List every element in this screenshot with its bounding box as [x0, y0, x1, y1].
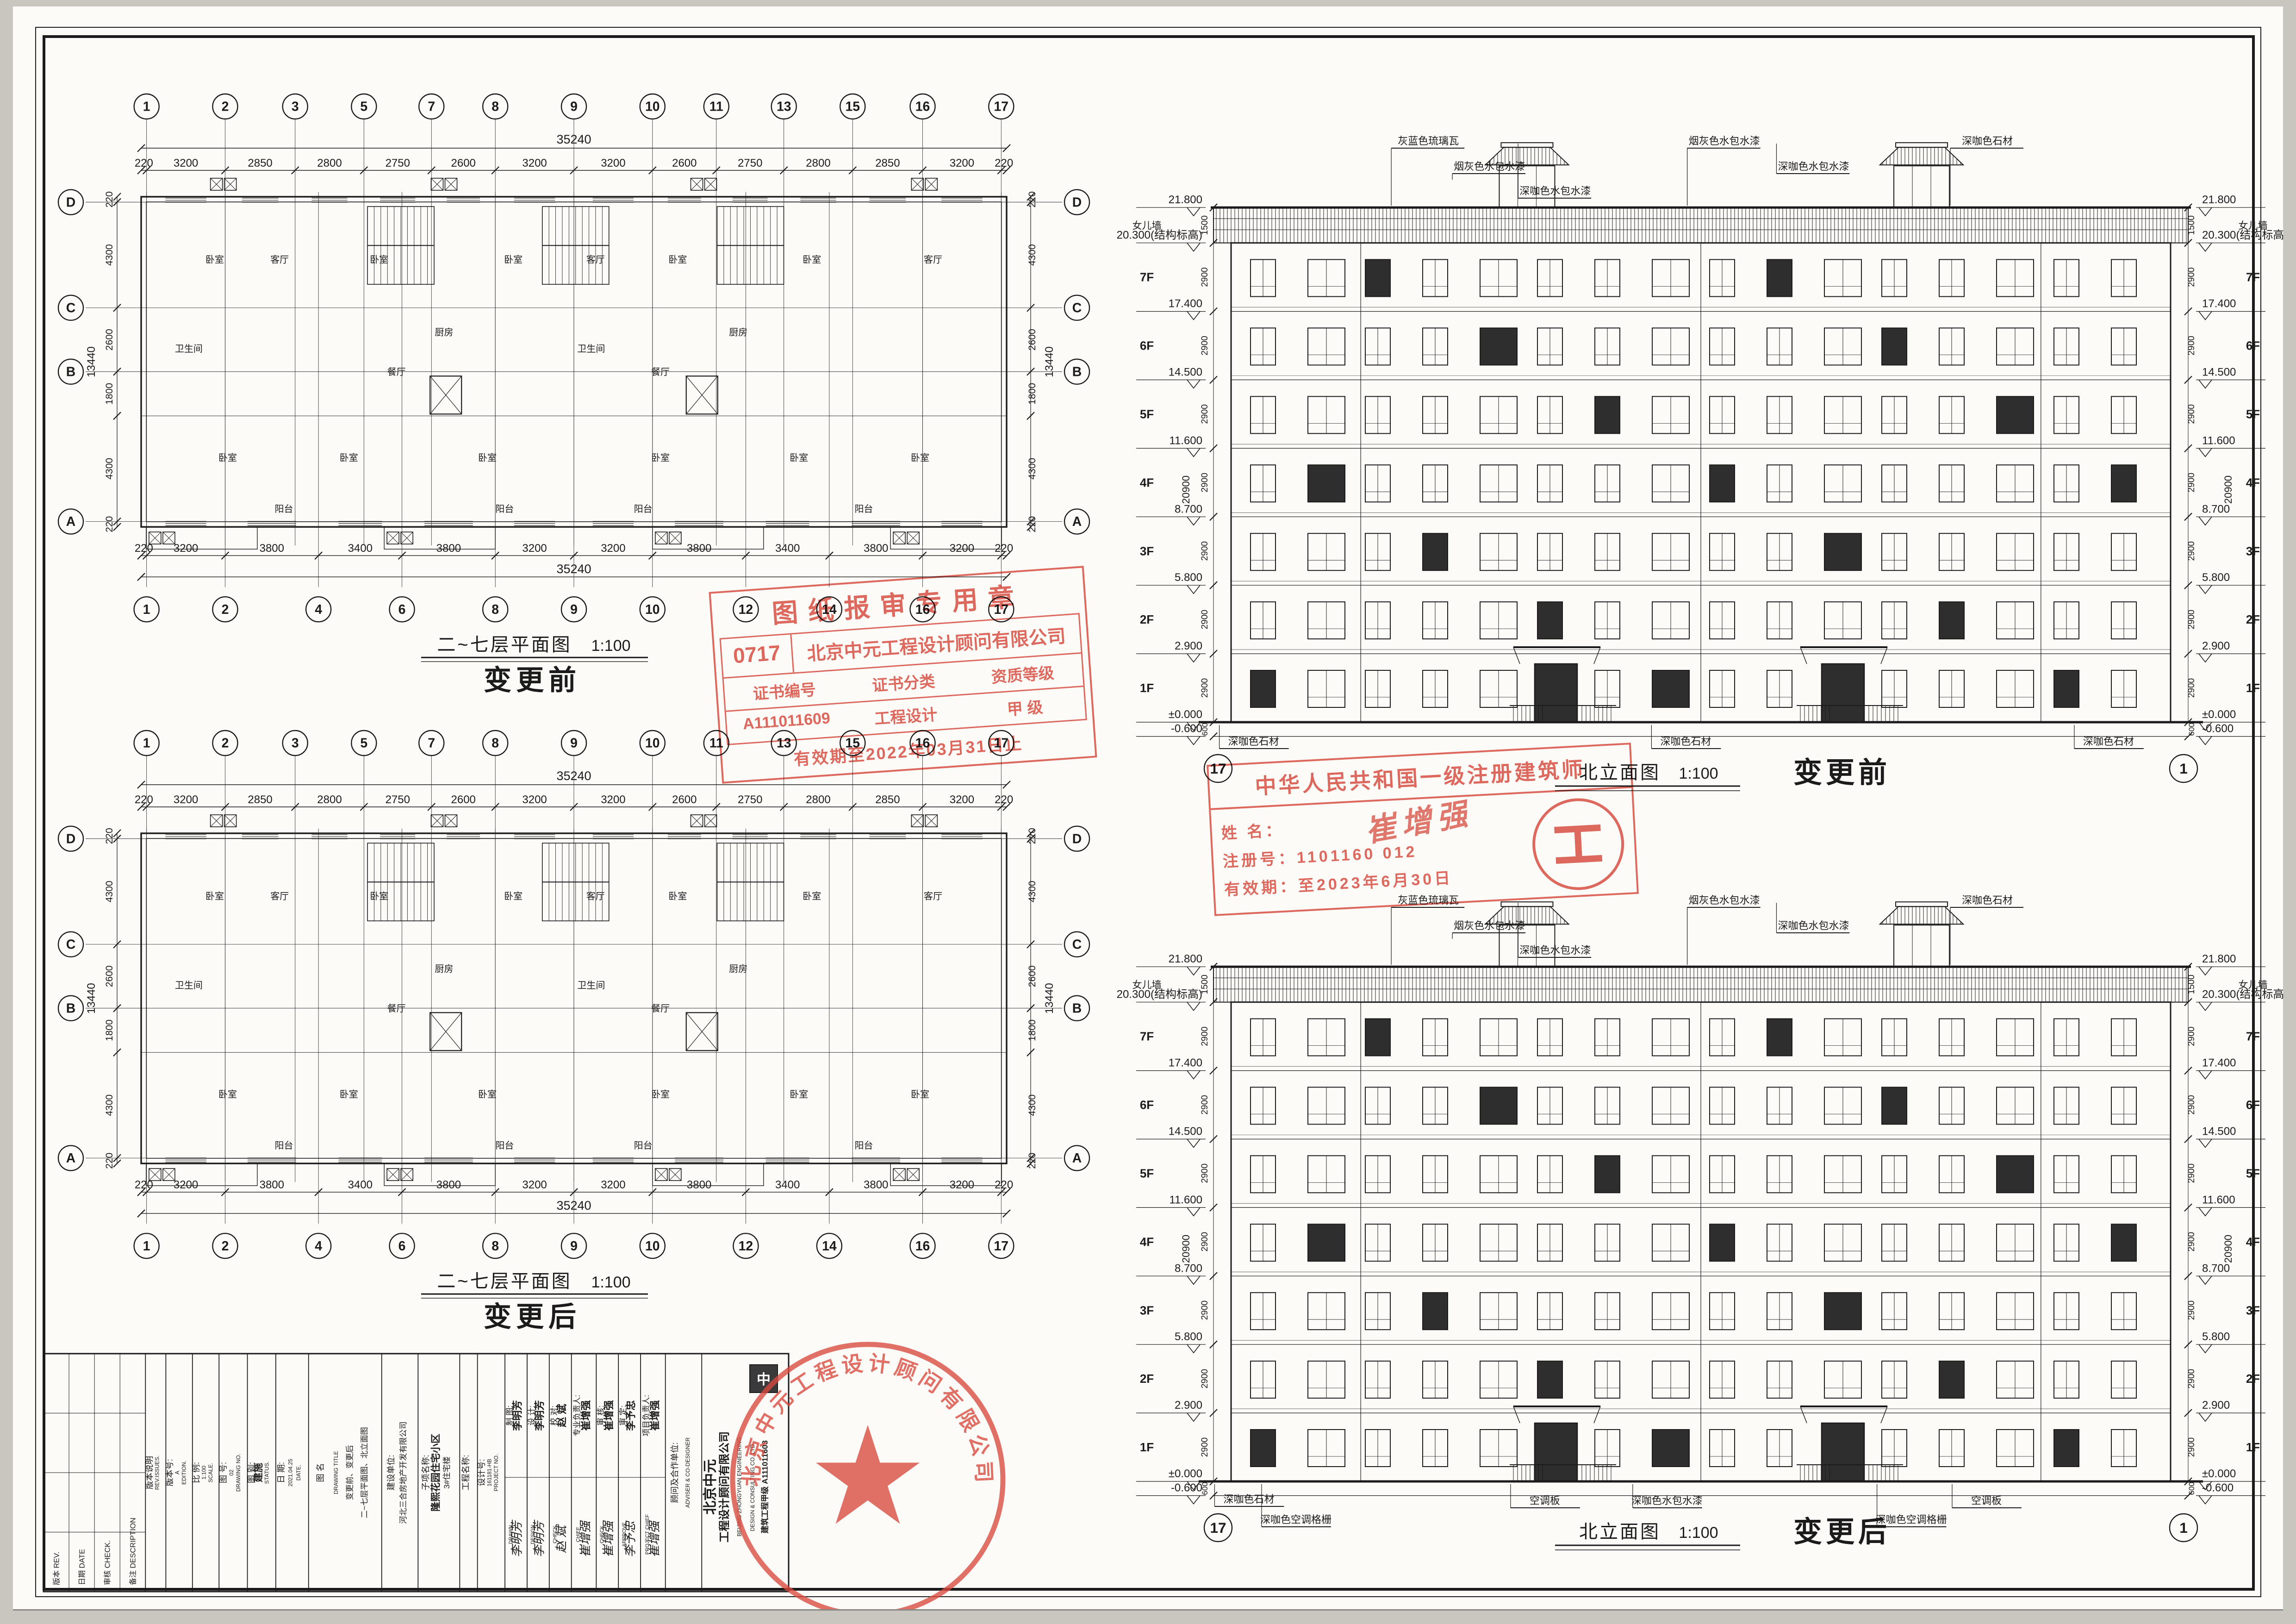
- svg-text:1F: 1F: [2246, 681, 2260, 695]
- svg-text:卫生间: 卫生间: [577, 980, 605, 991]
- svg-text:16: 16: [915, 100, 930, 114]
- svg-text:阳台: 阳台: [275, 504, 293, 514]
- svg-text:4300: 4300: [104, 881, 115, 902]
- svg-text:6F: 6F: [1140, 1098, 1154, 1112]
- svg-text:35240: 35240: [556, 769, 591, 783]
- svg-text:DRAWING TITLE: DRAWING TITLE: [333, 1451, 339, 1494]
- svg-text:A: A: [1072, 1151, 1082, 1166]
- svg-text:1F: 1F: [1140, 1440, 1154, 1454]
- svg-text:3200: 3200: [174, 157, 198, 169]
- svg-text:2.900: 2.900: [2202, 1399, 2230, 1412]
- svg-text:版本说明: 版本说明: [145, 1456, 154, 1489]
- svg-text:空调板: 空调板: [1971, 1495, 2002, 1506]
- svg-text:2900: 2900: [1200, 1232, 1210, 1251]
- svg-text:D: D: [66, 831, 75, 846]
- svg-text:2900: 2900: [1200, 473, 1210, 492]
- svg-text:3200: 3200: [601, 793, 625, 806]
- svg-text:2900: 2900: [1200, 1369, 1210, 1388]
- svg-text:15: 15: [846, 100, 860, 114]
- svg-text:阳台: 阳台: [634, 1140, 653, 1151]
- svg-text:17.400: 17.400: [1169, 298, 1202, 310]
- architect-reg-number: 1101160 012: [1296, 843, 1418, 867]
- svg-text:女儿墙: 女儿墙: [2239, 220, 2268, 231]
- svg-text:3800: 3800: [436, 1179, 461, 1191]
- svg-text:-0.600: -0.600: [2202, 723, 2234, 735]
- svg-text:3200: 3200: [174, 1179, 198, 1191]
- svg-text:2900: 2900: [1200, 268, 1210, 287]
- svg-text:DRAWING NO.: DRAWING NO.: [235, 1454, 242, 1492]
- svg-text:B: B: [1072, 365, 1082, 380]
- svg-text:2600: 2600: [451, 793, 476, 806]
- svg-text:2900: 2900: [2187, 1300, 2196, 1320]
- svg-text:审核 CHECK.: 审核 CHECK.: [104, 1540, 112, 1585]
- svg-text:4300: 4300: [104, 244, 115, 266]
- svg-text:220: 220: [135, 157, 153, 169]
- svg-text:2850: 2850: [248, 157, 272, 169]
- svg-text:2900: 2900: [2187, 268, 2196, 287]
- svg-text:2600: 2600: [104, 965, 115, 987]
- svg-text:PROJECT NO.: PROJECT NO.: [493, 1454, 499, 1491]
- svg-text:6F: 6F: [2246, 1098, 2260, 1112]
- svg-text:2900: 2900: [1200, 678, 1210, 698]
- plan-grid-axes: 1235789101113151617352402203200285028002…: [58, 731, 1089, 1258]
- svg-text:C: C: [1072, 937, 1082, 952]
- svg-text:5.800: 5.800: [1175, 571, 1202, 584]
- svg-text:02: 02: [228, 1469, 235, 1476]
- svg-text:6F: 6F: [2246, 339, 2260, 353]
- svg-text:600: 600: [2187, 723, 2196, 736]
- svg-text:-0.600: -0.600: [2202, 1482, 2234, 1494]
- svg-text:2: 2: [222, 736, 229, 751]
- svg-text:李予忠: 李予忠: [623, 1520, 637, 1557]
- architect-name-label: 姓 名：: [1221, 822, 1284, 843]
- svg-text:2900: 2900: [1200, 404, 1210, 424]
- svg-text:6: 6: [398, 1239, 406, 1254]
- svg-text:C: C: [66, 301, 75, 316]
- svg-text:17.400: 17.400: [1169, 1057, 1202, 1069]
- svg-text:3800: 3800: [687, 1179, 711, 1191]
- svg-text:B: B: [1072, 1001, 1082, 1016]
- svg-text:2: 2: [222, 602, 229, 617]
- svg-text:12: 12: [739, 1239, 753, 1254]
- svg-text:1:100: 1:100: [1679, 1524, 1718, 1542]
- svg-text:8: 8: [492, 602, 499, 617]
- svg-text:16: 16: [915, 1239, 930, 1254]
- svg-text:变更后: 变更后: [484, 1301, 581, 1332]
- svg-text:比 例:: 比 例:: [192, 1462, 201, 1483]
- svg-text:D: D: [66, 195, 75, 210]
- svg-text:深咖色水包水漆: 深咖色水包水漆: [1519, 944, 1591, 956]
- svg-text:11.600: 11.600: [1169, 434, 1202, 447]
- svg-text:2900: 2900: [2187, 1369, 2196, 1388]
- svg-text:3400: 3400: [775, 542, 800, 555]
- svg-text:3800: 3800: [864, 1179, 888, 1191]
- svg-text:2F: 2F: [2246, 1372, 2260, 1386]
- architect-valid-date: 至2023年6月30日: [1298, 869, 1453, 895]
- svg-text:深咖色石材: 深咖色石材: [1962, 894, 2013, 906]
- svg-text:13: 13: [777, 100, 791, 114]
- svg-text:卧室: 卧室: [370, 891, 388, 902]
- svg-text:卧室: 卧室: [340, 1089, 358, 1100]
- svg-text:600: 600: [2187, 1482, 2196, 1495]
- svg-text:3400: 3400: [775, 1179, 800, 1191]
- svg-text:3F: 3F: [2246, 1303, 2260, 1317]
- svg-text:崔增强: 崔增强: [578, 1520, 592, 1557]
- svg-text:李明芳: 李明芳: [534, 1400, 545, 1431]
- svg-text:2800: 2800: [317, 793, 342, 806]
- svg-text:工程名称:: 工程名称:: [461, 1455, 470, 1490]
- svg-text:阳台: 阳台: [634, 504, 653, 514]
- svg-text:220: 220: [1027, 191, 1038, 207]
- svg-text:卧室: 卧室: [478, 1089, 497, 1100]
- svg-text:2900: 2900: [2187, 1163, 2196, 1183]
- svg-text:35240: 35240: [556, 132, 591, 146]
- svg-text:2900: 2900: [2187, 404, 2196, 424]
- svg-text:5.800: 5.800: [2202, 571, 2230, 584]
- svg-text:河北三合房地产开发有限公司: 河北三合房地产开发有限公司: [399, 1422, 408, 1524]
- svg-text:B: B: [66, 1001, 75, 1016]
- svg-text:1: 1: [143, 602, 150, 617]
- svg-text:赵 斌: 赵 斌: [554, 1524, 568, 1553]
- svg-text:220: 220: [104, 1153, 115, 1169]
- svg-text:1F: 1F: [1140, 681, 1154, 695]
- svg-text:2.900: 2.900: [1175, 640, 1202, 652]
- round-seal-graphic: 北京中元工程设计顾问有限公司: [733, 1344, 1003, 1609]
- svg-text:9: 9: [570, 100, 578, 114]
- svg-text:2900: 2900: [1200, 1163, 1210, 1183]
- svg-text:±0.000: ±0.000: [2202, 708, 2236, 721]
- svg-text:21.800: 21.800: [2202, 194, 2236, 206]
- svg-text:REV.ISSUES.: REV.ISSUES.: [154, 1455, 161, 1490]
- svg-text:崔增强: 崔增强: [580, 1400, 591, 1431]
- svg-text:烟灰色水包水漆: 烟灰色水包水漆: [1689, 894, 1760, 906]
- plan-grid-axes: 1235789101113151617352402203200285028002…: [58, 94, 1089, 622]
- svg-text:17: 17: [994, 1239, 1009, 1254]
- svg-text:2900: 2900: [1200, 541, 1210, 561]
- svg-text:设计号:: 设计号:: [477, 1459, 486, 1486]
- svg-text:4F: 4F: [1140, 475, 1154, 489]
- plan-title: 二~七层平面图1:100变更后: [421, 1271, 648, 1332]
- svg-text:2900: 2900: [2187, 1232, 2196, 1251]
- svg-text:卧室: 卧室: [911, 1089, 929, 1100]
- svg-text:2750: 2750: [738, 157, 762, 169]
- svg-text:13440: 13440: [1043, 983, 1056, 1014]
- svg-text:3200: 3200: [950, 542, 974, 555]
- svg-text:1:100: 1:100: [201, 1466, 207, 1480]
- svg-text:±0.000: ±0.000: [2202, 1468, 2236, 1480]
- svg-text:220: 220: [104, 191, 115, 207]
- svg-text:220: 220: [1027, 1153, 1038, 1169]
- svg-text:客厅: 客厅: [924, 255, 942, 265]
- svg-text:2900: 2900: [1200, 1095, 1210, 1114]
- svg-text:2.900: 2.900: [1175, 1399, 1202, 1412]
- svg-text:卧室: 卧室: [803, 891, 821, 902]
- svg-text:深咖色水包水漆: 深咖色水包水漆: [1631, 1495, 1703, 1506]
- svg-text:8: 8: [492, 100, 499, 114]
- svg-text:-0.600: -0.600: [1171, 723, 1202, 735]
- svg-text:4300: 4300: [1027, 1094, 1038, 1116]
- svg-text:厨房: 厨房: [435, 964, 454, 974]
- svg-text:9: 9: [570, 1239, 578, 1254]
- svg-text:7: 7: [428, 100, 435, 114]
- svg-text:卫生间: 卫生间: [175, 344, 203, 354]
- svg-text:DATE.: DATE.: [295, 1465, 302, 1480]
- svg-text:1: 1: [2179, 1519, 2188, 1536]
- svg-text:2600: 2600: [1027, 329, 1038, 350]
- svg-text:烟灰色水包水漆: 烟灰色水包水漆: [1454, 920, 1525, 931]
- north-elevation-after: 21.80020.300(结构标高)17.40014.50011.6008.70…: [1092, 838, 2259, 1560]
- svg-text:-0.600: -0.600: [1171, 1482, 1202, 1494]
- svg-text:1800: 1800: [104, 1019, 115, 1041]
- svg-text:9: 9: [570, 736, 578, 751]
- svg-text:深咖色石材: 深咖色石材: [1223, 1493, 1274, 1505]
- svg-text:3200: 3200: [522, 157, 547, 169]
- svg-text:二~七层平面图、北立面图: 二~七层平面图、北立面图: [360, 1427, 369, 1518]
- svg-text:卧室: 卧室: [205, 891, 224, 902]
- svg-text:卧室: 卧室: [651, 453, 670, 463]
- elevation-level-markers: 21.80020.300(结构标高)17.40014.50011.6008.70…: [1117, 953, 2283, 1504]
- svg-text:4300: 4300: [1027, 458, 1038, 480]
- svg-text:卧室: 卧室: [651, 1089, 670, 1100]
- svg-text:3800: 3800: [687, 542, 711, 555]
- svg-text:10: 10: [645, 100, 660, 114]
- svg-text:李明芳: 李明芳: [510, 1519, 524, 1557]
- svg-text:14.500: 14.500: [2202, 366, 2236, 379]
- svg-text:6F: 6F: [1140, 339, 1154, 353]
- svg-text:8.700: 8.700: [1175, 1262, 1202, 1274]
- svg-text:220: 220: [995, 157, 1013, 169]
- svg-text:5: 5: [360, 100, 367, 114]
- svg-text:14.500: 14.500: [1169, 366, 1202, 379]
- svg-text:备注 DESCRIPTION: 备注 DESCRIPTION: [129, 1518, 137, 1585]
- svg-text:3F: 3F: [2246, 544, 2260, 558]
- svg-text:2F: 2F: [1140, 612, 1154, 626]
- svg-text:女儿墙: 女儿墙: [2239, 980, 2268, 990]
- svg-text:2900: 2900: [1200, 1027, 1210, 1046]
- architect-seal-icon: [1527, 793, 1630, 895]
- svg-text:二~七层平面图: 二~七层平面图: [437, 635, 572, 655]
- svg-text:2900: 2900: [1200, 610, 1210, 629]
- svg-text:8.700: 8.700: [2202, 1262, 2230, 1274]
- svg-text:C: C: [66, 937, 75, 952]
- svg-text:3200: 3200: [174, 542, 198, 555]
- svg-text:赵 斌: 赵 斌: [556, 1404, 567, 1428]
- svg-text:1500: 1500: [2187, 974, 2196, 994]
- svg-text:3#住宅楼: 3#住宅楼: [442, 1456, 451, 1489]
- svg-text:A: A: [1072, 514, 1082, 529]
- svg-text:崔增强: 崔增强: [649, 1400, 661, 1431]
- svg-text:3800: 3800: [436, 542, 461, 555]
- svg-text:李予忠: 李予忠: [625, 1400, 637, 1431]
- svg-text:2750: 2750: [386, 793, 410, 806]
- svg-text:1: 1: [143, 1239, 150, 1254]
- svg-text:1:100: 1:100: [1679, 765, 1718, 782]
- svg-text:二~七层平面图: 二~七层平面图: [437, 1271, 572, 1292]
- review-stamp-code: 0717: [721, 635, 794, 677]
- svg-text:烟灰色水包水漆: 烟灰色水包水漆: [1689, 135, 1760, 147]
- svg-text:李明芳: 李明芳: [532, 1519, 546, 1557]
- svg-text:2900: 2900: [2187, 336, 2196, 355]
- svg-text:17: 17: [994, 100, 1009, 114]
- svg-text:2F: 2F: [2246, 612, 2260, 626]
- svg-text:600: 600: [1201, 723, 1209, 736]
- svg-text:3: 3: [292, 736, 299, 751]
- svg-text:阳台: 阳台: [495, 504, 514, 514]
- svg-text:变更前: 变更前: [484, 665, 581, 696]
- svg-text:隆熙花园住宅小区: 隆熙花园住宅小区: [430, 1434, 441, 1512]
- svg-text:北立面图: 北立面图: [1579, 1522, 1661, 1542]
- svg-text:1: 1: [143, 100, 150, 114]
- svg-text:餐厅: 餐厅: [651, 367, 670, 377]
- svg-text:3200: 3200: [950, 793, 974, 806]
- svg-text:14: 14: [822, 1239, 837, 1254]
- svg-text:厨房: 厨房: [729, 964, 747, 974]
- svg-text:3F: 3F: [1140, 1303, 1154, 1317]
- svg-text:±0.000: ±0.000: [1169, 708, 1202, 721]
- svg-text:7F: 7F: [1140, 1030, 1154, 1043]
- svg-text:20900: 20900: [1180, 1235, 1192, 1263]
- svg-text:厨房: 厨房: [729, 327, 747, 338]
- svg-text:220: 220: [1027, 516, 1038, 532]
- svg-text:女儿墙: 女儿墙: [1132, 220, 1162, 231]
- elevation-title: 171北立面图1:100变更后: [1204, 1514, 2197, 1550]
- svg-text:客厅: 客厅: [270, 255, 289, 265]
- svg-text:1:100: 1:100: [591, 1274, 630, 1291]
- svg-text:20900: 20900: [2222, 475, 2234, 504]
- svg-text:2: 2: [222, 100, 229, 114]
- svg-text:3200: 3200: [601, 1179, 625, 1191]
- svg-text:崔增强: 崔增强: [603, 1400, 615, 1431]
- svg-text:深咖色石材: 深咖色石材: [1962, 135, 2013, 147]
- svg-text:7F: 7F: [2246, 1030, 2260, 1043]
- elevation-facade: [1199, 902, 2203, 1495]
- svg-text:2900: 2900: [2187, 678, 2196, 698]
- svg-text:±0.000: ±0.000: [1169, 1468, 1202, 1480]
- svg-text:1: 1: [2179, 760, 2188, 777]
- svg-text:3800: 3800: [260, 542, 284, 555]
- drawing-review-stamp: 图纸报审专用章 0717 北京中元工程设计顾问有限公司 证书编号 证书分类 资质…: [709, 566, 1097, 784]
- svg-text:4F: 4F: [1140, 1235, 1154, 1249]
- svg-text:9: 9: [570, 602, 578, 617]
- svg-text:7F: 7F: [1140, 270, 1154, 284]
- svg-text:220: 220: [1027, 828, 1038, 844]
- svg-text:5F: 5F: [1140, 1166, 1154, 1180]
- svg-text:餐厅: 餐厅: [387, 1003, 406, 1014]
- svg-text:8.700: 8.700: [2202, 503, 2230, 515]
- svg-text:2600: 2600: [451, 157, 476, 169]
- svg-text:建设单位:: 建设单位:: [386, 1455, 396, 1490]
- svg-text:600: 600: [1201, 1482, 1209, 1495]
- svg-text:11.600: 11.600: [2202, 434, 2235, 447]
- svg-text:2600: 2600: [672, 157, 697, 169]
- svg-text:3200: 3200: [601, 157, 625, 169]
- svg-text:4: 4: [315, 1239, 322, 1254]
- svg-text:1500: 1500: [2187, 215, 2196, 235]
- svg-text:阳台: 阳台: [495, 1140, 514, 1151]
- svg-text:D: D: [1072, 831, 1082, 846]
- svg-text:20900: 20900: [2222, 1235, 2234, 1263]
- svg-text:客厅: 客厅: [586, 891, 605, 902]
- svg-text:3200: 3200: [950, 1179, 974, 1191]
- svg-text:13440: 13440: [1043, 346, 1056, 377]
- svg-text:卧室: 卧室: [478, 453, 497, 463]
- svg-text:2900: 2900: [2187, 1027, 2196, 1046]
- svg-text:3200: 3200: [601, 542, 625, 555]
- svg-text:11.600: 11.600: [1169, 1193, 1202, 1206]
- plan-room-labels: 卧室客厅卧室卧室客厅卧室卧室客厅卫生间厨房卫生间厨房餐厅餐厅卧室卧室卧室卧室卧室…: [175, 891, 942, 1151]
- svg-text:卧室: 卧室: [218, 1089, 237, 1100]
- svg-text:卫生间: 卫生间: [175, 980, 203, 991]
- svg-text:卧室: 卧室: [218, 453, 237, 463]
- svg-text:8: 8: [492, 1239, 499, 1254]
- svg-text:崔增强: 崔增强: [647, 1520, 661, 1557]
- plan-title: 二~七层平面图1:100变更前: [421, 635, 648, 696]
- architect-stamp-body: 姓 名： 注册号：1101160 012 有效期：至2023年6月30日 崔增强: [1211, 788, 1637, 914]
- svg-text:17: 17: [1210, 1519, 1226, 1536]
- svg-text:深咖色水包水漆: 深咖色水包水漆: [1778, 161, 1849, 172]
- svg-text:版本号:: 版本号:: [165, 1459, 174, 1486]
- svg-text:21.800: 21.800: [2202, 953, 2236, 965]
- svg-text:卧室: 卧室: [790, 1089, 808, 1100]
- svg-text:2600: 2600: [1027, 965, 1038, 987]
- svg-text:日 期:: 日 期:: [277, 1462, 286, 1483]
- svg-text:卧室: 卧室: [668, 255, 687, 265]
- svg-text:1500: 1500: [1200, 215, 1210, 235]
- svg-text:14.500: 14.500: [1169, 1125, 1202, 1138]
- svg-text:烟灰色水包水漆: 烟灰色水包水漆: [1454, 161, 1525, 172]
- svg-text:B: B: [66, 365, 75, 380]
- svg-text:11.600: 11.600: [2202, 1193, 2235, 1206]
- svg-text:A: A: [66, 1151, 75, 1166]
- svg-text:STATUS.: STATUS.: [264, 1462, 270, 1484]
- svg-text:2900: 2900: [1200, 336, 1210, 355]
- svg-text:11: 11: [709, 100, 723, 114]
- svg-text:A: A: [174, 1471, 180, 1474]
- architect-reg-label: 注册号：: [1222, 849, 1297, 870]
- svg-text:1800: 1800: [1027, 383, 1038, 405]
- svg-text:5F: 5F: [2246, 1166, 2260, 1180]
- svg-text:1:100: 1:100: [591, 637, 630, 655]
- svg-text:10: 10: [645, 736, 660, 751]
- svg-text:8.700: 8.700: [1175, 503, 1202, 515]
- svg-text:4300: 4300: [1027, 244, 1038, 266]
- svg-text:客厅: 客厅: [586, 255, 605, 265]
- svg-text:阳台: 阳台: [854, 1140, 873, 1151]
- plan-room-labels: 卧室客厅卧室卧室客厅卧室卧室客厅卫生间厨房卫生间厨房餐厅餐厅卧室卧室卧室卧室卧室…: [175, 255, 942, 514]
- svg-text:变更前: 变更前: [1793, 757, 1891, 789]
- svg-text:220: 220: [995, 793, 1013, 806]
- svg-text:5F: 5F: [2246, 407, 2260, 421]
- elevation-level-markers: 21.80020.300(结构标高)17.40014.50011.6008.70…: [1117, 194, 2283, 744]
- svg-text:深咖色水包水漆: 深咖色水包水漆: [1519, 185, 1591, 197]
- svg-text:卧室: 卧室: [790, 453, 808, 463]
- svg-text:4F: 4F: [2246, 475, 2260, 489]
- svg-text:13440: 13440: [85, 346, 98, 377]
- svg-text:2800: 2800: [317, 157, 342, 169]
- registered-architect-stamp: 中华人民共和国一级注册建筑师 姓 名： 注册号：1101160 012 有效期：…: [1207, 743, 1639, 916]
- svg-text:3200: 3200: [950, 157, 974, 169]
- svg-text:变更后: 变更后: [1793, 1516, 1891, 1548]
- svg-text:21.800: 21.800: [1169, 194, 1202, 206]
- svg-text:220: 220: [104, 828, 115, 844]
- svg-text:5.800: 5.800: [1175, 1330, 1202, 1343]
- svg-text:卧室: 卧室: [668, 891, 687, 902]
- svg-text:3400: 3400: [348, 1179, 373, 1191]
- svg-text:阳台: 阳台: [854, 504, 873, 514]
- svg-text:2900: 2900: [2187, 610, 2196, 629]
- svg-text:日期 DATE: 日期 DATE: [78, 1549, 87, 1585]
- svg-text:D: D: [1072, 195, 1082, 210]
